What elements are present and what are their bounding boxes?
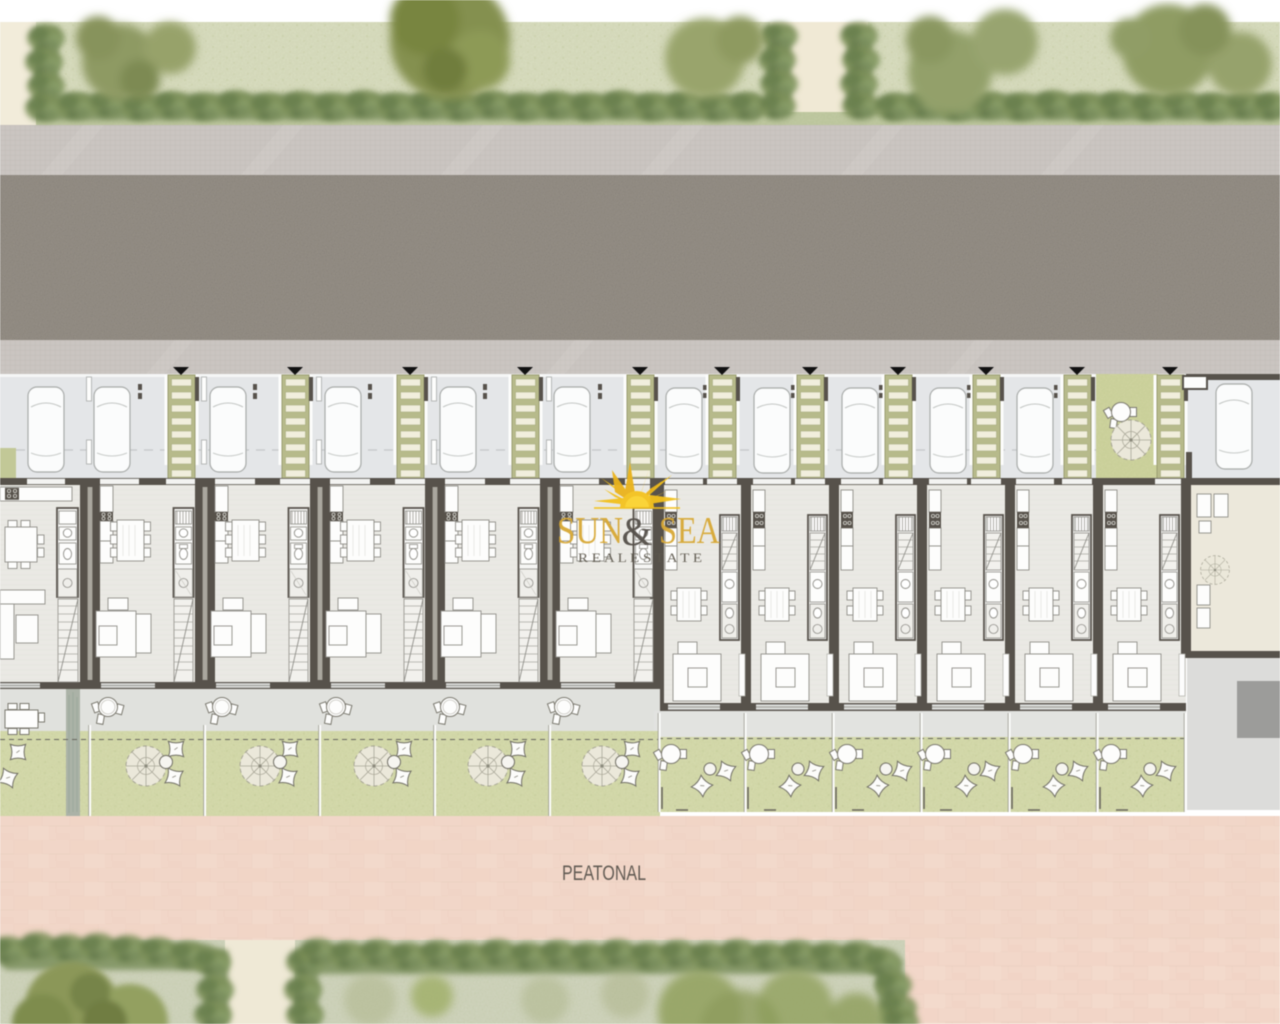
svg-text:&: & xyxy=(621,509,652,554)
svg-text:SEA: SEA xyxy=(659,510,720,552)
svg-text:SUN: SUN xyxy=(557,510,623,552)
svg-text:PEATONAL: PEATONAL xyxy=(562,862,646,885)
svg-text:R E A L E S T A T E: R E A L E S T A T E xyxy=(578,551,702,565)
